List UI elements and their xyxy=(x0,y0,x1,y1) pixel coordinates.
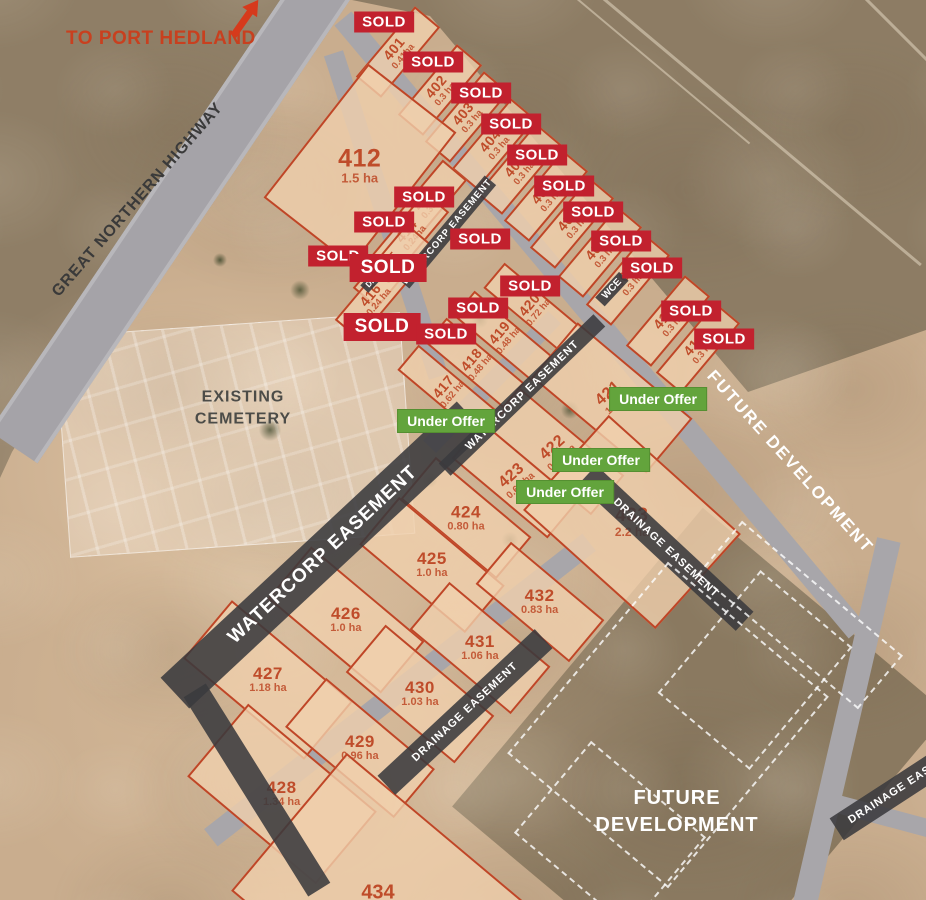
badge-sold-407: SOLD xyxy=(563,202,623,223)
badge-sold-416: SOLD xyxy=(350,254,427,282)
lot-426-area: 1.0 ha xyxy=(330,623,361,635)
to-port-hedland-label: TO PORT HEDLAND xyxy=(66,28,256,50)
badge-sold-413: SOLD xyxy=(394,187,454,208)
badge-sold-420: SOLD xyxy=(500,276,560,297)
lot-431-area: 1.06 ha xyxy=(461,651,498,663)
lot-434-number: 434 xyxy=(361,882,394,900)
badge-sold-406: SOLD xyxy=(534,176,594,197)
badge-under-offer-417: Under Offer xyxy=(397,409,495,433)
lot-426-number: 426 xyxy=(330,605,361,623)
existing-cemetery-label: EXISTING CEMETERY xyxy=(195,386,291,429)
lot-412-number: 412 xyxy=(338,145,381,171)
lot-429-number: 429 xyxy=(341,733,378,751)
lot-424-area: 0.80 ha xyxy=(447,521,484,533)
lot-425-area: 1.0 ha xyxy=(416,568,447,580)
lot-424-number: 424 xyxy=(447,503,484,521)
lot-432-area: 0.83 ha xyxy=(521,605,558,617)
badge-sold-402: SOLD xyxy=(403,52,463,73)
badge-sold-410: SOLD xyxy=(661,301,721,322)
cemetery-label-line1: EXISTING xyxy=(202,388,285,405)
badge-sold-401: SOLD xyxy=(354,12,414,33)
badge-sold-403: SOLD xyxy=(451,83,511,104)
lot-427-area: 1.18 ha xyxy=(249,683,286,695)
badge-sold-415-b: SOLD xyxy=(450,229,510,250)
badge-sold-419: SOLD xyxy=(448,298,508,319)
badge-sold-414: SOLD xyxy=(354,212,414,233)
lot-430-area: 1.03 ha xyxy=(401,697,438,709)
future-development-area-label: FUTURE DEVELOPMENT xyxy=(595,785,758,839)
badge-sold-409: SOLD xyxy=(622,258,682,279)
lot-425-number: 425 xyxy=(416,550,447,568)
lot-430-number: 430 xyxy=(401,679,438,697)
badge-sold-411: SOLD xyxy=(694,329,754,350)
badge-sold-408: SOLD xyxy=(591,231,651,252)
estate-sales-map: EXISTING CEMETERY GREAT NORTHERN HIGHWAY… xyxy=(0,0,926,900)
future-development-line1: FUTURE xyxy=(633,787,720,809)
badge-under-offer-422: Under Offer xyxy=(552,448,650,472)
lot-432-number: 432 xyxy=(521,587,558,605)
lot-431-number: 431 xyxy=(461,633,498,651)
badge-sold-405: SOLD xyxy=(507,145,567,166)
badge-under-offer-423: Under Offer xyxy=(516,480,614,504)
cemetery-label-line2: CEMETERY xyxy=(195,410,291,427)
future-development-line2: DEVELOPMENT xyxy=(595,814,758,836)
badge-sold-404: SOLD xyxy=(481,114,541,135)
lot-412-area: 1.5 ha xyxy=(338,171,381,185)
badge-under-offer-421: Under Offer xyxy=(609,387,707,411)
lot-427-number: 427 xyxy=(249,665,286,683)
badge-sold-418: SOLD xyxy=(416,324,476,345)
badge-sold-416-b: SOLD xyxy=(344,313,421,341)
